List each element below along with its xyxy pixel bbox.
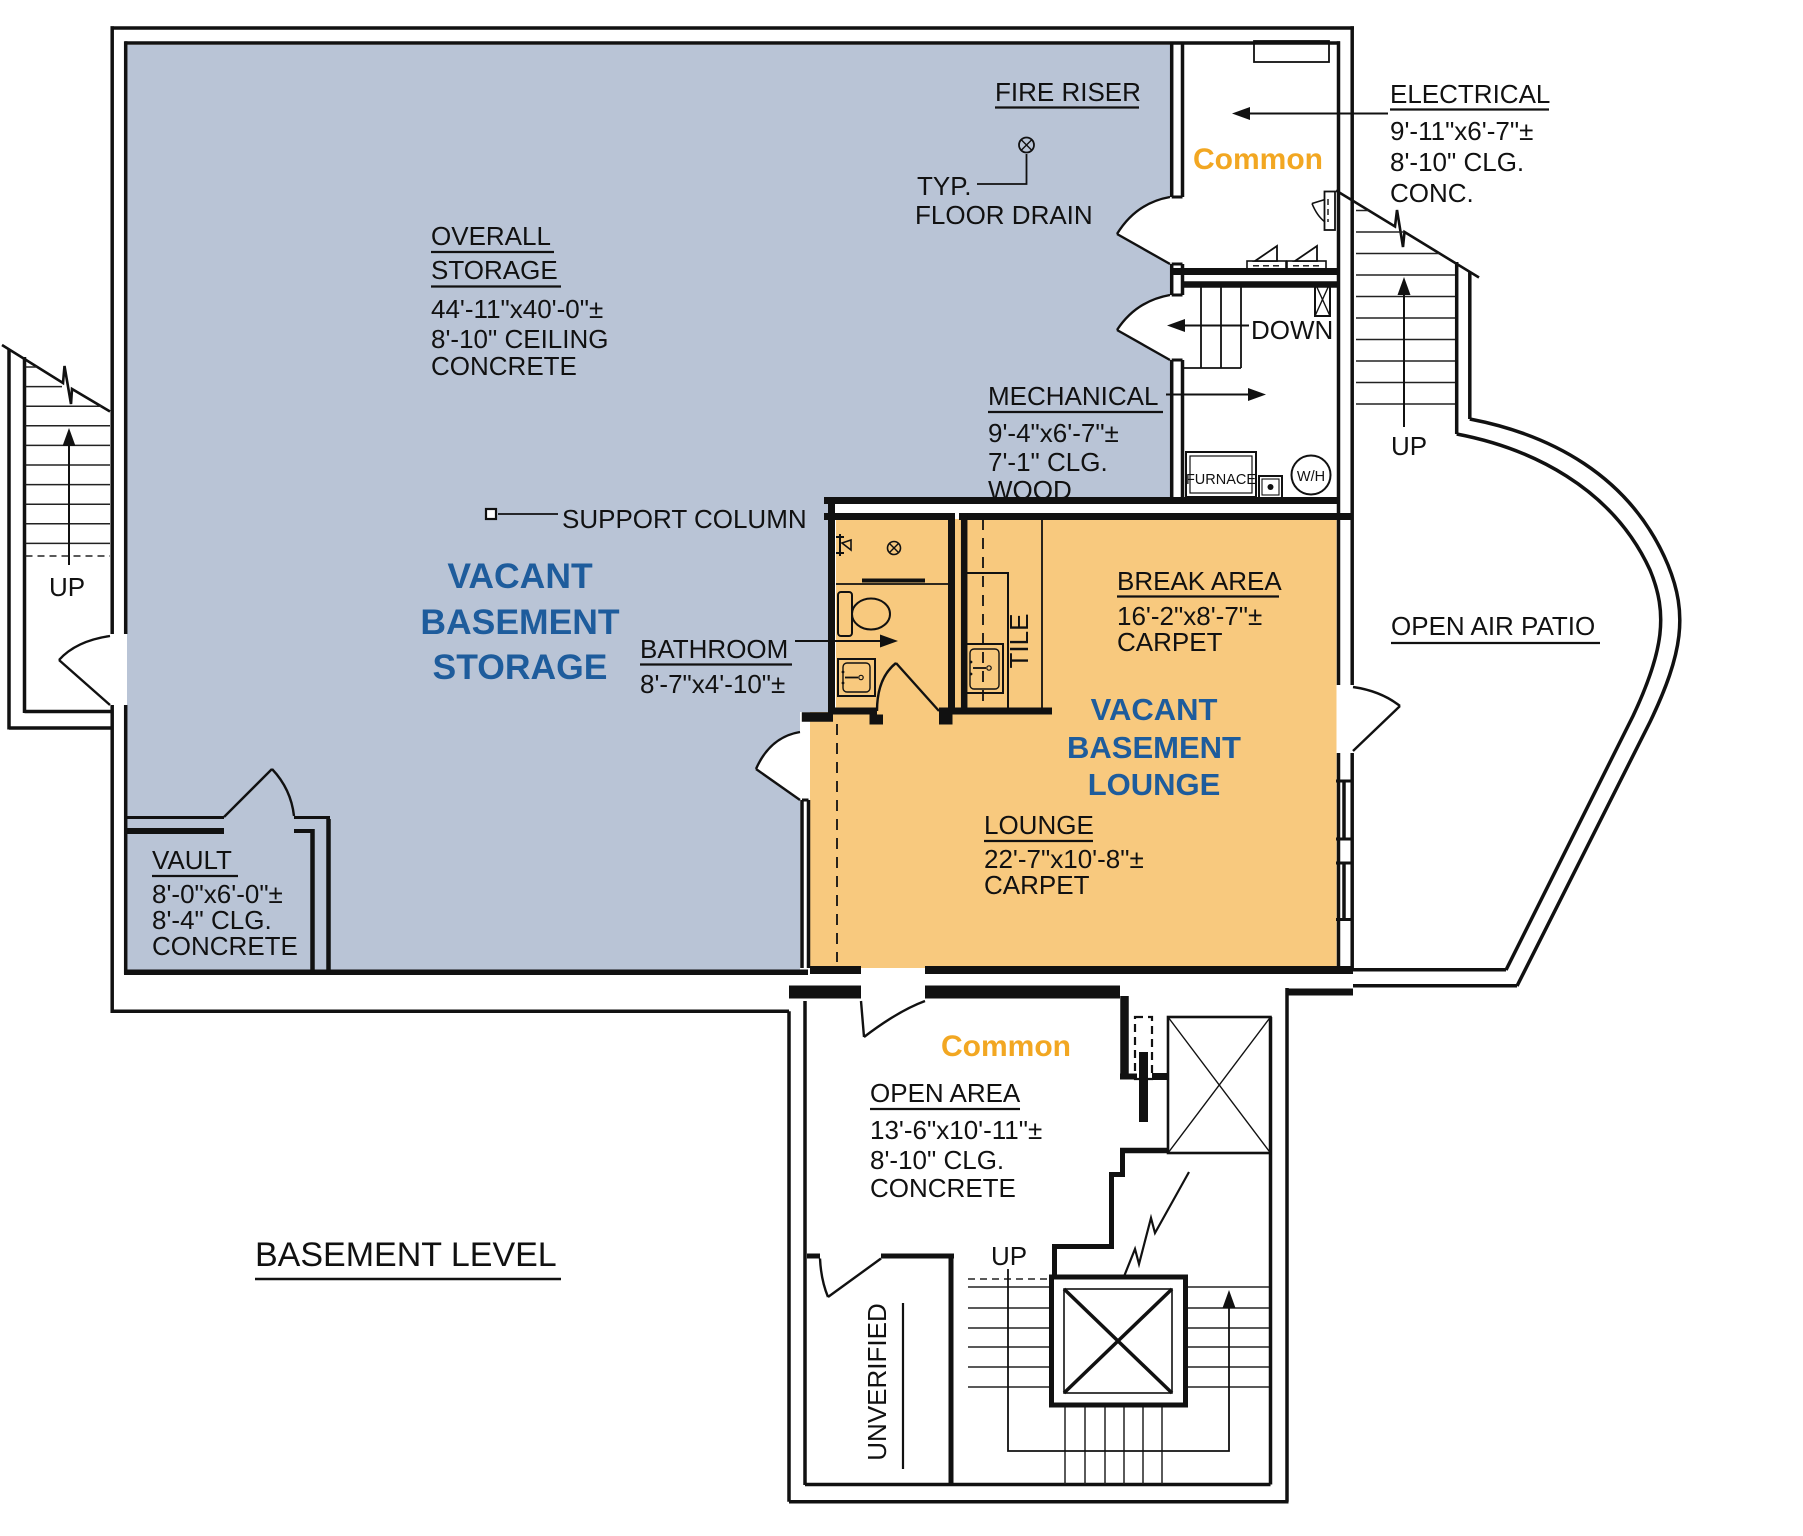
svg-text:13'-6"x10'-11"±: 13'-6"x10'-11"± [870,1115,1042,1145]
svg-text:8'-10" CLG.: 8'-10" CLG. [1390,147,1524,177]
svg-text:STORAGE: STORAGE [433,647,608,687]
svg-text:OVERALL: OVERALL [431,221,551,251]
svg-text:SUPPORT COLUMN: SUPPORT COLUMN [562,504,807,534]
svg-text:VACANT: VACANT [1091,692,1218,727]
svg-text:44'-11"x40'-0"±: 44'-11"x40'-0"± [431,294,603,324]
svg-text:FIRE RISER: FIRE RISER [995,77,1141,107]
svg-text:LOUNGE: LOUNGE [1088,767,1221,802]
svg-text:CONCRETE: CONCRETE [431,351,577,381]
svg-text:BASEMENT LEVEL: BASEMENT LEVEL [255,1236,557,1274]
svg-text:TYP.: TYP. [917,171,971,201]
svg-text:ELECTRICAL: ELECTRICAL [1390,79,1550,109]
svg-text:CONCRETE: CONCRETE [870,1173,1016,1203]
svg-text:Common: Common [1193,143,1323,176]
svg-text:9'-4"x6'-7"±: 9'-4"x6'-7"± [988,418,1119,448]
svg-text:BASEMENT: BASEMENT [420,602,620,642]
svg-text:LOUNGE: LOUNGE [984,810,1094,840]
svg-text:MECHANICAL: MECHANICAL [988,381,1158,411]
svg-text:UNVERIFIED: UNVERIFIED [862,1303,892,1460]
svg-text:STORAGE: STORAGE [431,255,558,285]
svg-text:FLOOR DRAIN: FLOOR DRAIN [915,200,1093,230]
svg-text:7'-1" CLG.: 7'-1" CLG. [988,447,1108,477]
svg-text:9'-11"x6'-7"±: 9'-11"x6'-7"± [1390,116,1533,146]
svg-text:DOWN: DOWN [1251,315,1333,345]
svg-text:8'-7"x4'-10"±: 8'-7"x4'-10"± [640,669,785,699]
svg-text:8'-10" CEILING: 8'-10" CEILING [431,324,608,354]
svg-text:OPEN AIR PATIO: OPEN AIR PATIO [1391,611,1595,641]
svg-text:OPEN AREA: OPEN AREA [870,1078,1021,1108]
svg-text:CARPET: CARPET [984,870,1090,900]
svg-text:WOOD: WOOD [988,475,1072,505]
svg-text:VAULT: VAULT [152,845,232,875]
svg-text:UP: UP [49,572,85,602]
svg-text:Common: Common [941,1030,1071,1063]
svg-text:FURNACE: FURNACE [1186,472,1256,488]
svg-text:BASEMENT: BASEMENT [1067,730,1241,765]
svg-text:UP: UP [1391,431,1427,461]
svg-text:BATHROOM: BATHROOM [640,634,788,664]
svg-text:W/H: W/H [1297,469,1325,485]
svg-text:CONCRETE: CONCRETE [152,931,298,961]
svg-text:UP: UP [991,1241,1027,1271]
svg-text:VACANT: VACANT [447,556,593,596]
svg-text:CARPET: CARPET [1117,627,1223,657]
svg-text:CONC.: CONC. [1390,178,1474,208]
svg-text:8'-10" CLG.: 8'-10" CLG. [870,1145,1004,1175]
svg-text:TILE: TILE [1004,614,1034,669]
svg-text:BREAK AREA: BREAK AREA [1117,566,1282,596]
